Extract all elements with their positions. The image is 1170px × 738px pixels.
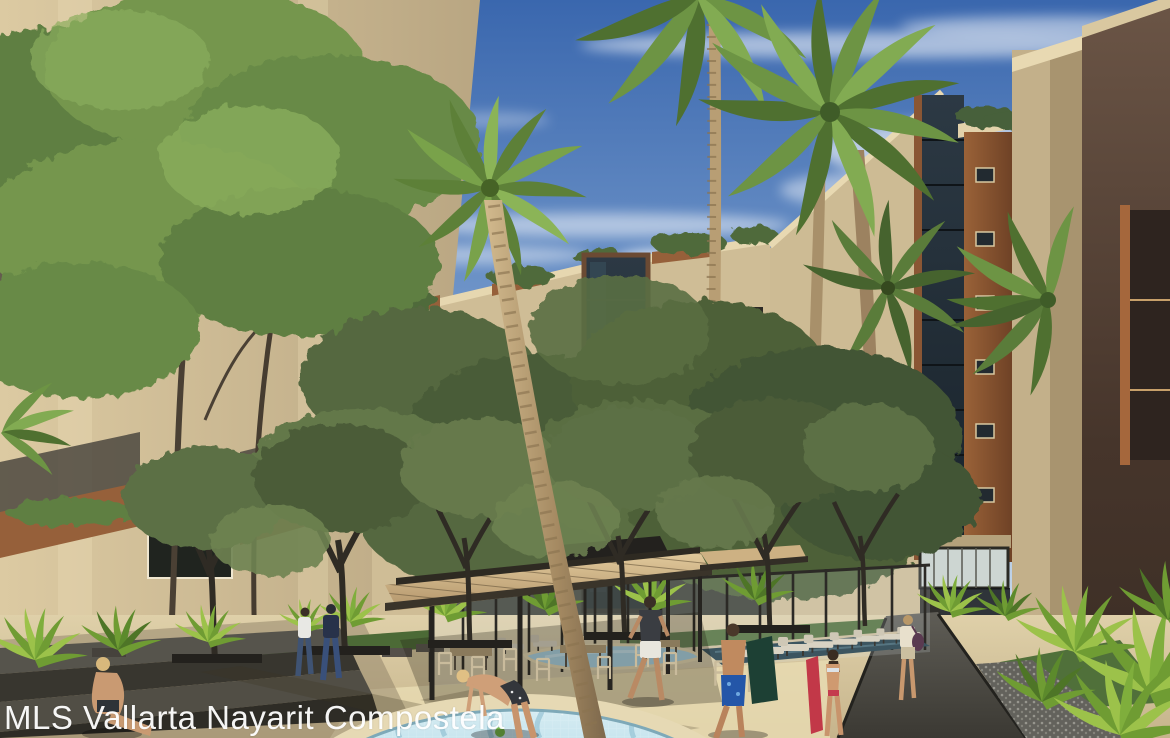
watermark-text: MLS Vallarta Nayarit Compostela (4, 701, 505, 734)
rendering-canvas: MLS Vallarta Nayarit Compostela (0, 0, 1170, 738)
scene-svg (0, 0, 1170, 738)
lit-lobby-window (920, 548, 1008, 588)
